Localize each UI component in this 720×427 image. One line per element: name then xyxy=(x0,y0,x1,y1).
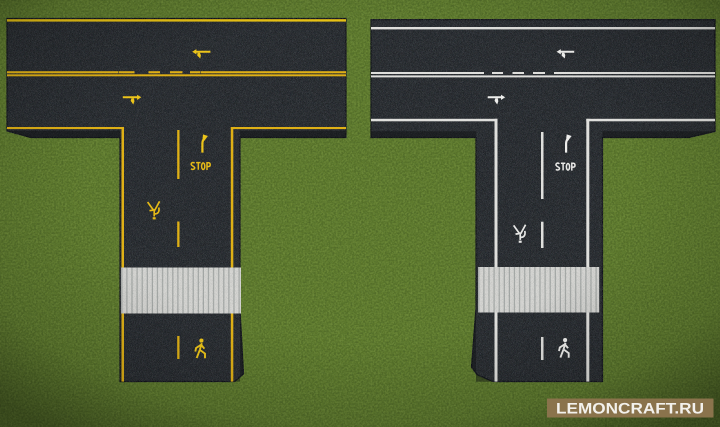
svg-text:LEMONCRAFT.RU: LEMONCRAFT.RU xyxy=(556,401,704,418)
